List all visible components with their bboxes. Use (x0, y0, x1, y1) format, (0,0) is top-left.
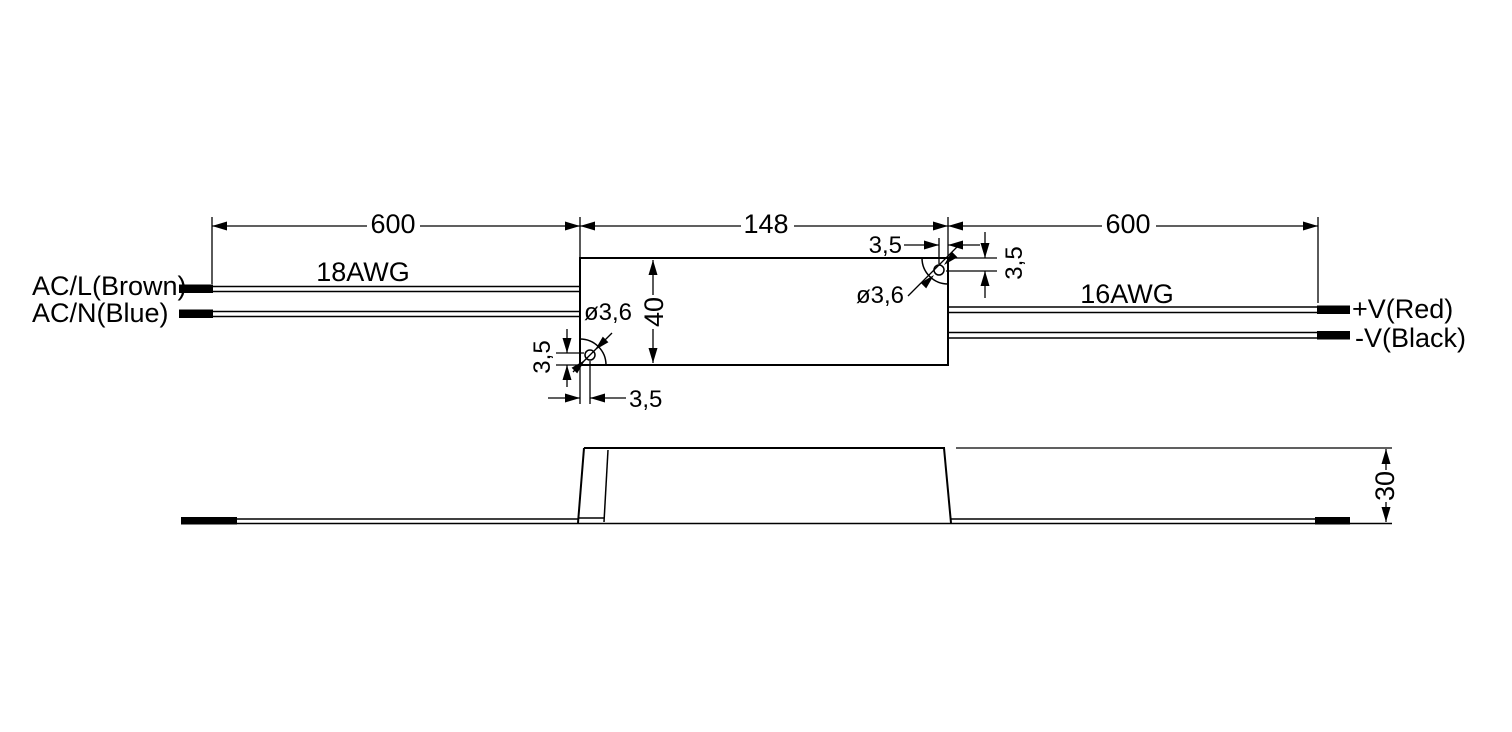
dim-text-hole-bl-diameter: ø3,6 (584, 299, 632, 326)
wire-tip-vminus (1317, 331, 1350, 340)
output-wires (948, 306, 1350, 340)
wire-tip-vplus (1317, 306, 1350, 315)
dim-case-height: 30 (1370, 449, 1400, 522)
top-view: AC/L(Brown) AC/N(Blue) +V(Red) -V(Black)… (32, 209, 1466, 413)
label-ac-n: AC/N(Blue) (32, 298, 169, 328)
side-case-left-seam (604, 450, 608, 522)
dim-text-case-length: 148 (743, 209, 788, 239)
drawing-canvas: AC/L(Brown) AC/N(Blue) +V(Red) -V(Black)… (0, 0, 1512, 732)
dim-text-case-height: 30 (1370, 471, 1400, 501)
label-ac-l: AC/L(Brown) (32, 271, 187, 301)
side-wire-tip-left (181, 517, 237, 525)
wire-tip-acn (179, 310, 213, 319)
side-case-left-edge (578, 448, 584, 523)
side-case-right-edge (944, 448, 951, 523)
case-body (580, 258, 948, 365)
label-v-minus: -V(Black) (1355, 323, 1466, 353)
label-output-gauge: 16AWG (1080, 279, 1174, 309)
side-wire-tip-right (1315, 517, 1350, 525)
technical-drawing: AC/L(Brown) AC/N(Blue) +V(Red) -V(Black)… (0, 0, 1512, 732)
dim-text-hole-bl-offset-x: 3,5 (629, 386, 662, 413)
dim-text-input-length: 600 (370, 209, 415, 239)
dim-text-hole-tr-offset-y: 3,5 (1001, 246, 1028, 279)
label-input-gauge: 18AWG (316, 257, 410, 287)
input-wires (179, 285, 580, 319)
case-outline (580, 258, 948, 365)
dim-text-output-length: 600 (1105, 209, 1150, 239)
dim-text-case-width: 40 (639, 297, 669, 327)
dim-text-hole-tr-diameter: ø3,6 (856, 282, 904, 309)
dim-text-hole-tr-offset-x: 3,5 (869, 232, 902, 259)
label-v-plus: +V(Red) (1352, 294, 1453, 324)
side-profile (181, 448, 1392, 525)
dim-text-hole-bl-offset-y: 3,5 (529, 340, 556, 373)
side-view: 30 (181, 448, 1400, 525)
